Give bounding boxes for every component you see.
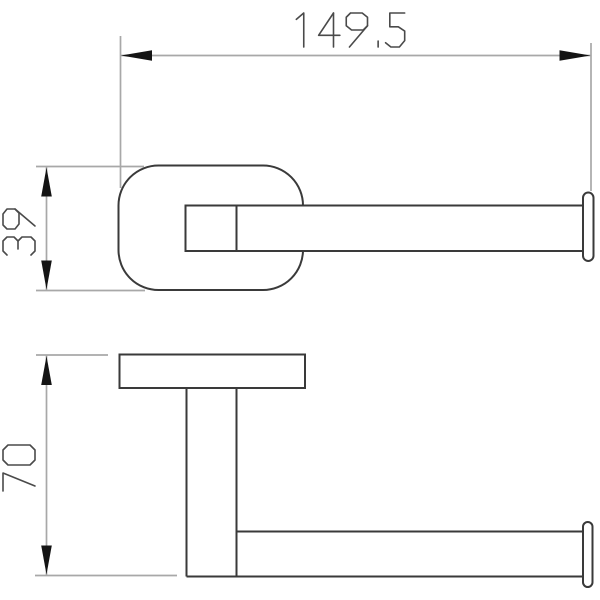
dimension-width <box>121 13 592 191</box>
arrowhead-up-icon <box>41 356 52 385</box>
glyph-5 <box>386 13 405 47</box>
arrowhead-down-icon <box>41 261 52 290</box>
glyph-9 <box>15 209 35 226</box>
glyph-3 <box>18 237 35 255</box>
roller-bar <box>186 206 584 252</box>
drawing-svg <box>0 0 600 600</box>
glyph-9 <box>346 13 367 30</box>
glyph-7 <box>3 473 35 491</box>
arrowhead-left-icon <box>121 50 152 61</box>
technical-drawing <box>0 0 600 600</box>
side-view <box>120 355 593 588</box>
dimension-label-width <box>296 13 404 47</box>
mount-plate-side <box>120 355 306 389</box>
arrowhead-down-icon <box>41 546 52 575</box>
arrowhead-up-icon <box>41 168 52 197</box>
glyph-3 <box>3 237 18 255</box>
glyph-9 <box>349 26 367 47</box>
glyph-1 <box>296 13 303 47</box>
glyph-9 <box>3 209 19 229</box>
bar-end-cap <box>583 193 594 262</box>
dimension-label-height <box>3 445 35 491</box>
glyph-4 <box>319 13 340 35</box>
bar-end-cap-side <box>583 522 593 587</box>
arrowhead-right-icon <box>560 50 591 61</box>
top-view <box>119 166 594 291</box>
dimension-label-plate-height <box>3 209 35 255</box>
glyph-0 <box>3 445 35 465</box>
